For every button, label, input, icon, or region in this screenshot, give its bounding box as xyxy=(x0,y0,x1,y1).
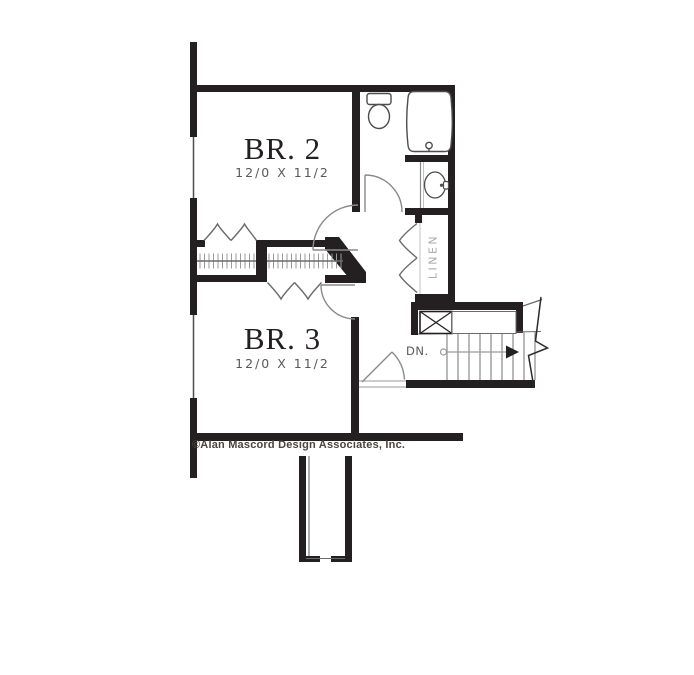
floorplan: BR. 2 12/0 X 11/2 BR. 3 12/0 X 11/2 DN. … xyxy=(0,0,694,675)
copyright-text: ©Alan Mascord Design Associates, Inc. xyxy=(192,439,405,451)
br2-room-label: BR. 2 xyxy=(200,131,365,167)
chimney-lines xyxy=(306,456,345,559)
stair-treads xyxy=(447,332,535,380)
closet-rod-br2 xyxy=(197,254,256,269)
bifold-door-br3-closet xyxy=(268,283,322,300)
wall-left-middle xyxy=(190,198,197,315)
bifold-door-linen xyxy=(400,223,421,294)
br3-room-label: BR. 3 xyxy=(200,321,365,357)
wall-stair-closet-right xyxy=(516,302,523,333)
hall-bottom-door xyxy=(359,352,406,387)
bathtub-fixture xyxy=(407,92,453,152)
stairs xyxy=(418,297,548,388)
walls xyxy=(190,42,535,562)
shelf-xbox xyxy=(420,312,516,334)
toilet-fixture xyxy=(367,94,391,129)
wall-closet-bottom-left xyxy=(197,275,267,282)
linen-closet-label: LINEN xyxy=(427,217,440,297)
sink-fixture xyxy=(421,162,449,208)
wall-closet-bottom-right xyxy=(325,275,353,283)
bifold-door-br2-closet xyxy=(204,224,257,241)
wall-stair-closet-top xyxy=(411,302,523,310)
br2-room-dimensions: 12/0 X 11/2 xyxy=(200,165,365,180)
wall-bath-bottom xyxy=(405,208,455,215)
stairs-down-label: DN. xyxy=(406,344,429,358)
wall-linen-stub xyxy=(415,215,422,223)
wall-stair-closet-left xyxy=(411,302,418,335)
chimney-right xyxy=(345,456,352,562)
break-line xyxy=(529,297,548,388)
wall-closet-top-stub xyxy=(197,240,205,247)
closet-rod-br3 xyxy=(267,254,343,269)
wall-stair-bottom xyxy=(406,380,535,388)
br3-door xyxy=(321,285,355,319)
wall-under-tub xyxy=(405,155,455,162)
br3-room-dimensions: 12/0 X 11/2 xyxy=(200,356,365,371)
chimney-left xyxy=(299,456,306,562)
wall-closet-top-right xyxy=(267,240,327,247)
bath-door xyxy=(365,175,402,212)
